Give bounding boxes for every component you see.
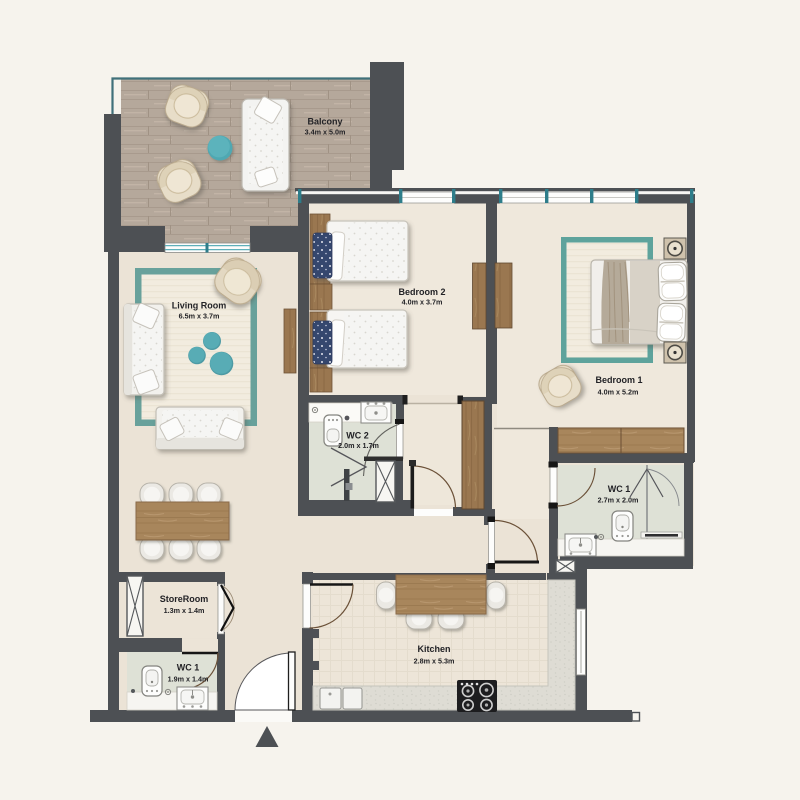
svg-text:3.4m x 5.0m: 3.4m x 5.0m — [305, 128, 346, 137]
svg-text:StoreRoom: StoreRoom — [160, 594, 209, 604]
svg-text:2.7m x 2.0m: 2.7m x 2.0m — [598, 496, 639, 505]
svg-text:4.0m x 3.7m: 4.0m x 3.7m — [402, 298, 443, 307]
svg-text:1.3m x 1.4m: 1.3m x 1.4m — [164, 606, 205, 615]
svg-text:2.0m x 1.7m: 2.0m x 1.7m — [338, 441, 379, 450]
svg-text:6.5m x 3.7m: 6.5m x 3.7m — [179, 312, 220, 321]
svg-text:Balcony: Balcony — [307, 117, 342, 127]
svg-text:1.9m x 1.4m: 1.9m x 1.4m — [168, 675, 209, 684]
svg-text:Kitchen: Kitchen — [417, 644, 450, 654]
svg-text:Bedroom 2: Bedroom 2 — [398, 287, 445, 297]
svg-text:2.8m x 5.3m: 2.8m x 5.3m — [414, 657, 455, 666]
svg-text:WC 1: WC 1 — [177, 663, 200, 673]
svg-text:WC 2: WC 2 — [346, 431, 369, 441]
svg-text:4.0m x 5.2m: 4.0m x 5.2m — [598, 388, 639, 397]
svg-text:Bedroom 1: Bedroom 1 — [595, 375, 642, 385]
svg-text:Living Room: Living Room — [172, 301, 227, 311]
svg-text:WC 1: WC 1 — [608, 484, 631, 494]
